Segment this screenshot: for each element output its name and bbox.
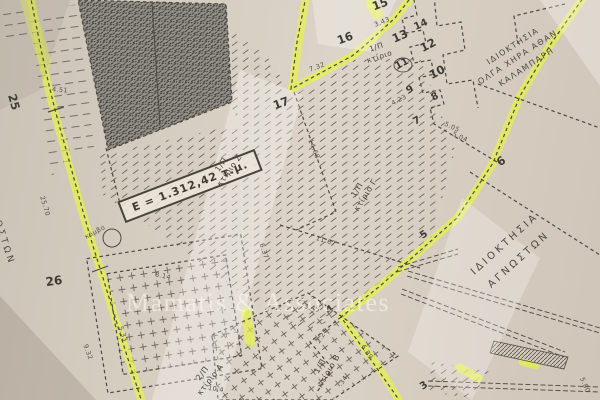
point-26: 26 <box>45 273 63 289</box>
watermark: Mamatis & Associates <box>126 288 390 318</box>
watermark-text: Mamatis & Associates <box>126 288 390 317</box>
cadastral-plan-scan: 3 4 5 6 7 8 9 10 11 12 13 14 15 16 17 25… <box>0 0 600 400</box>
node-circle <box>103 229 121 247</box>
dark-building-block <box>78 0 232 150</box>
dim-top-left: 4.51 <box>52 85 69 94</box>
